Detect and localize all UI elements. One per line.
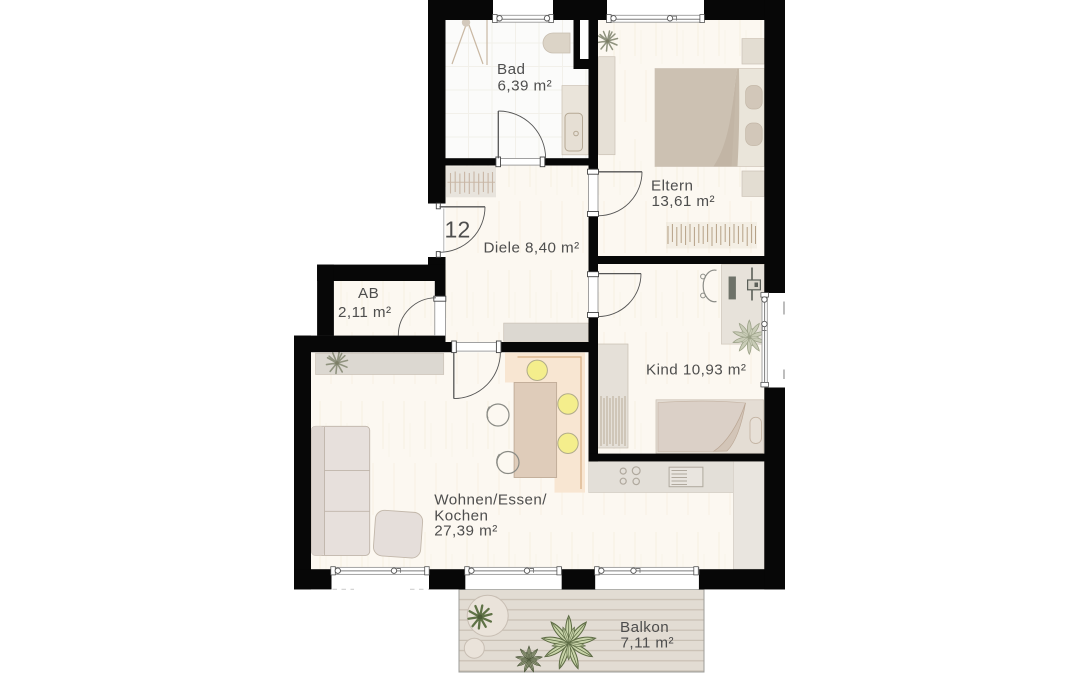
svg-text:6,39 m²: 6,39 m² — [498, 77, 553, 94]
svg-text:Wohnen/Essen/: Wohnen/Essen/ — [434, 491, 547, 508]
svg-text:27,39 m²: 27,39 m² — [434, 522, 498, 539]
svg-text:2,11 m²: 2,11 m² — [338, 304, 392, 321]
svg-text:AB: AB — [358, 285, 379, 302]
svg-text:7,11 m²: 7,11 m² — [621, 634, 675, 651]
svg-text:Kind 10,93 m²: Kind 10,93 m² — [646, 362, 746, 379]
svg-text:Balkon: Balkon — [620, 619, 669, 636]
svg-text:Bad: Bad — [497, 61, 525, 78]
svg-text:12: 12 — [445, 217, 471, 243]
svg-text:Diele 8,40 m²: Diele 8,40 m² — [484, 240, 580, 257]
svg-text:13,61 m²: 13,61 m² — [652, 193, 716, 210]
